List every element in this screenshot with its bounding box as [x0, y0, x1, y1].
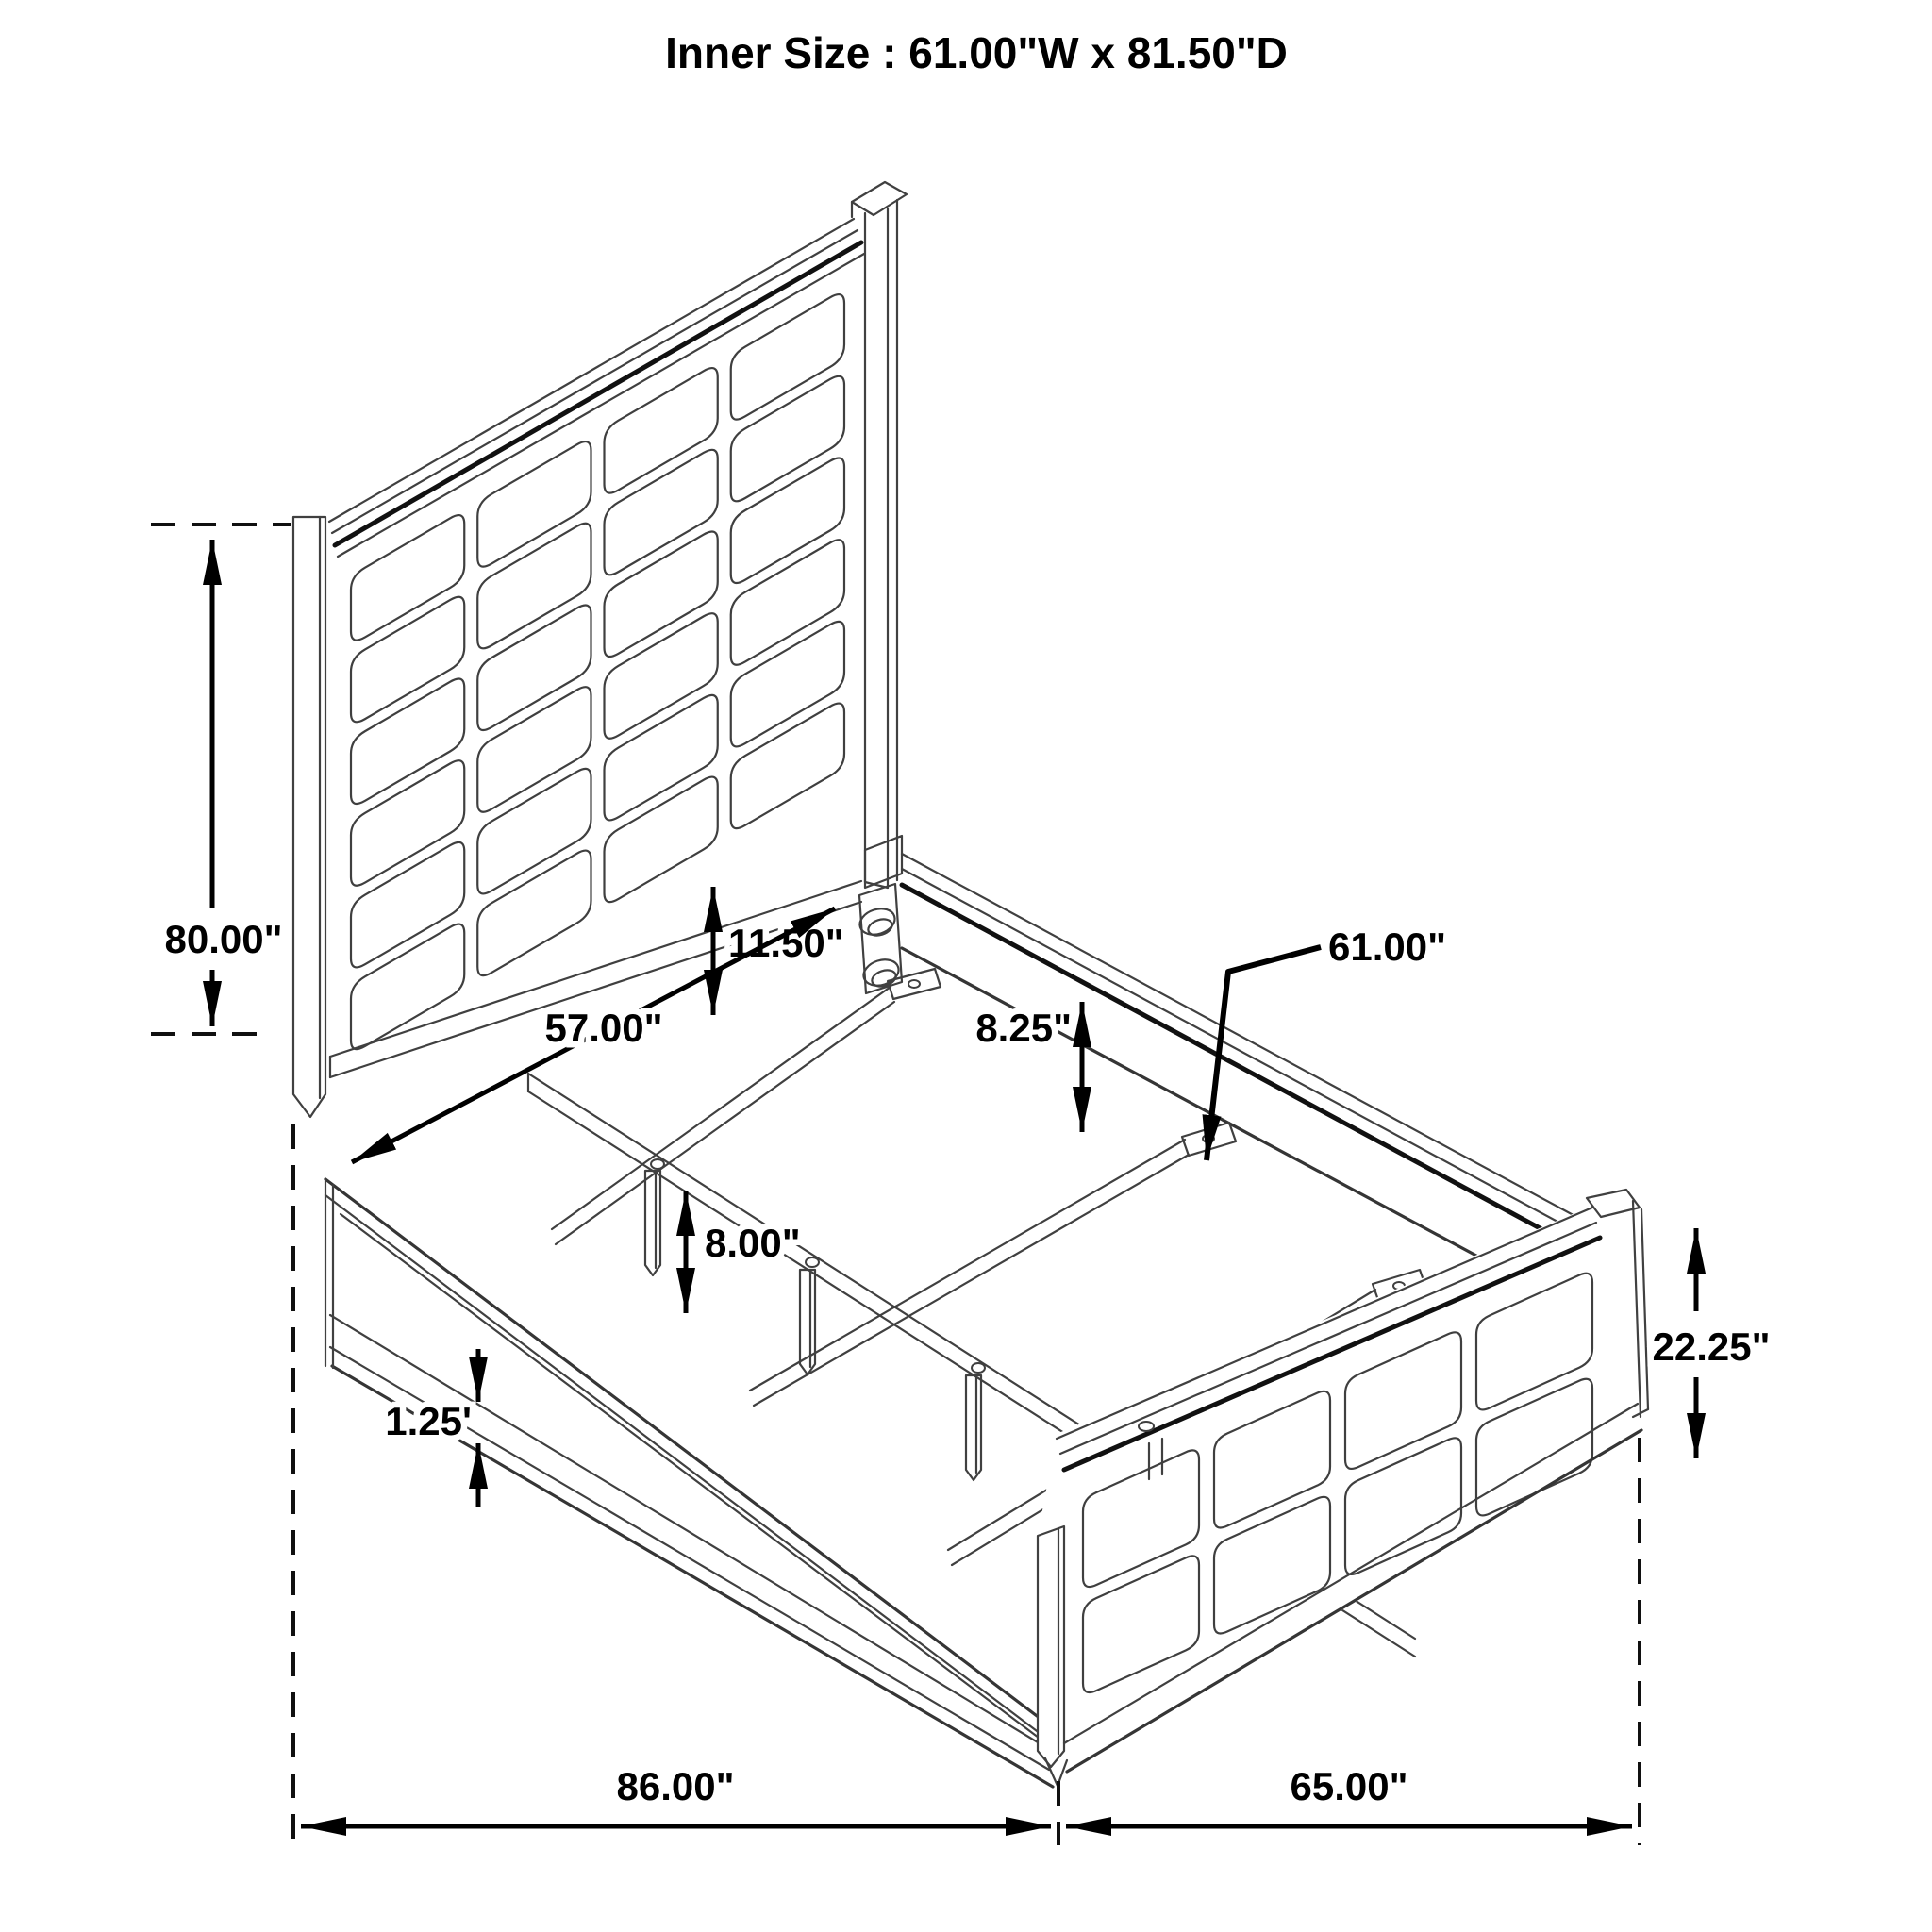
near-rail-lip: [325, 1195, 1063, 1751]
dim-inner-width-label: 57.00": [544, 1006, 662, 1050]
screw: [972, 1363, 985, 1373]
page-title: Inner Size : 61.00"W x 81.50"D: [665, 28, 1288, 77]
diagram-canvas: 80.00" 11.50" 57.00" 8.25" 8.00" 61.00" …: [0, 0, 1932, 1932]
near-rail-trim: [330, 1315, 1047, 1748]
screw: [908, 980, 920, 988]
dim-footboard-height-label: 22.25": [1652, 1324, 1770, 1369]
footboard-right-edge: [1641, 1209, 1648, 1409]
dim-width-label: 65.00": [1290, 1764, 1407, 1808]
support-leg: [645, 1171, 660, 1275]
dim-rail-drop-label: 8.25": [975, 1006, 1072, 1050]
bed-dimension-diagram: 80.00" 11.50" 57.00" 8.25" 8.00" 61.00" …: [0, 0, 1932, 1932]
footboard-end-cap: [1587, 1190, 1640, 1217]
rail-bracket: [857, 884, 902, 993]
dim-panel-drop-label: 11.50": [728, 921, 844, 965]
near-rail-top-edge: [325, 1179, 1063, 1736]
dim-headboard-height-label: 80.00": [164, 917, 282, 961]
support-leg: [800, 1270, 815, 1374]
dim-length-label: 86.00": [616, 1764, 734, 1808]
support-leg: [966, 1375, 981, 1480]
far-rail-accent-edge: [902, 885, 1594, 1257]
headboard: [293, 182, 907, 1117]
dim-rail-lip-label: 1.25': [385, 1399, 472, 1443]
near-rail-face: [325, 1179, 1063, 1787]
dim-slat-length-label: 61.00": [1328, 924, 1446, 969]
far-rail-lip: [902, 869, 1594, 1241]
far-side-rail: [865, 836, 1594, 1319]
footboard: [1038, 1190, 1648, 1786]
dim-slat-length-leader: [1207, 947, 1321, 1160]
near-rail-ledge: [341, 1214, 1050, 1746]
screw: [806, 1257, 819, 1267]
dim-leg-height-label: 8.00": [705, 1221, 801, 1265]
headboard-right-post-cap: [852, 182, 907, 215]
near-side-rail: [325, 1179, 1063, 1787]
